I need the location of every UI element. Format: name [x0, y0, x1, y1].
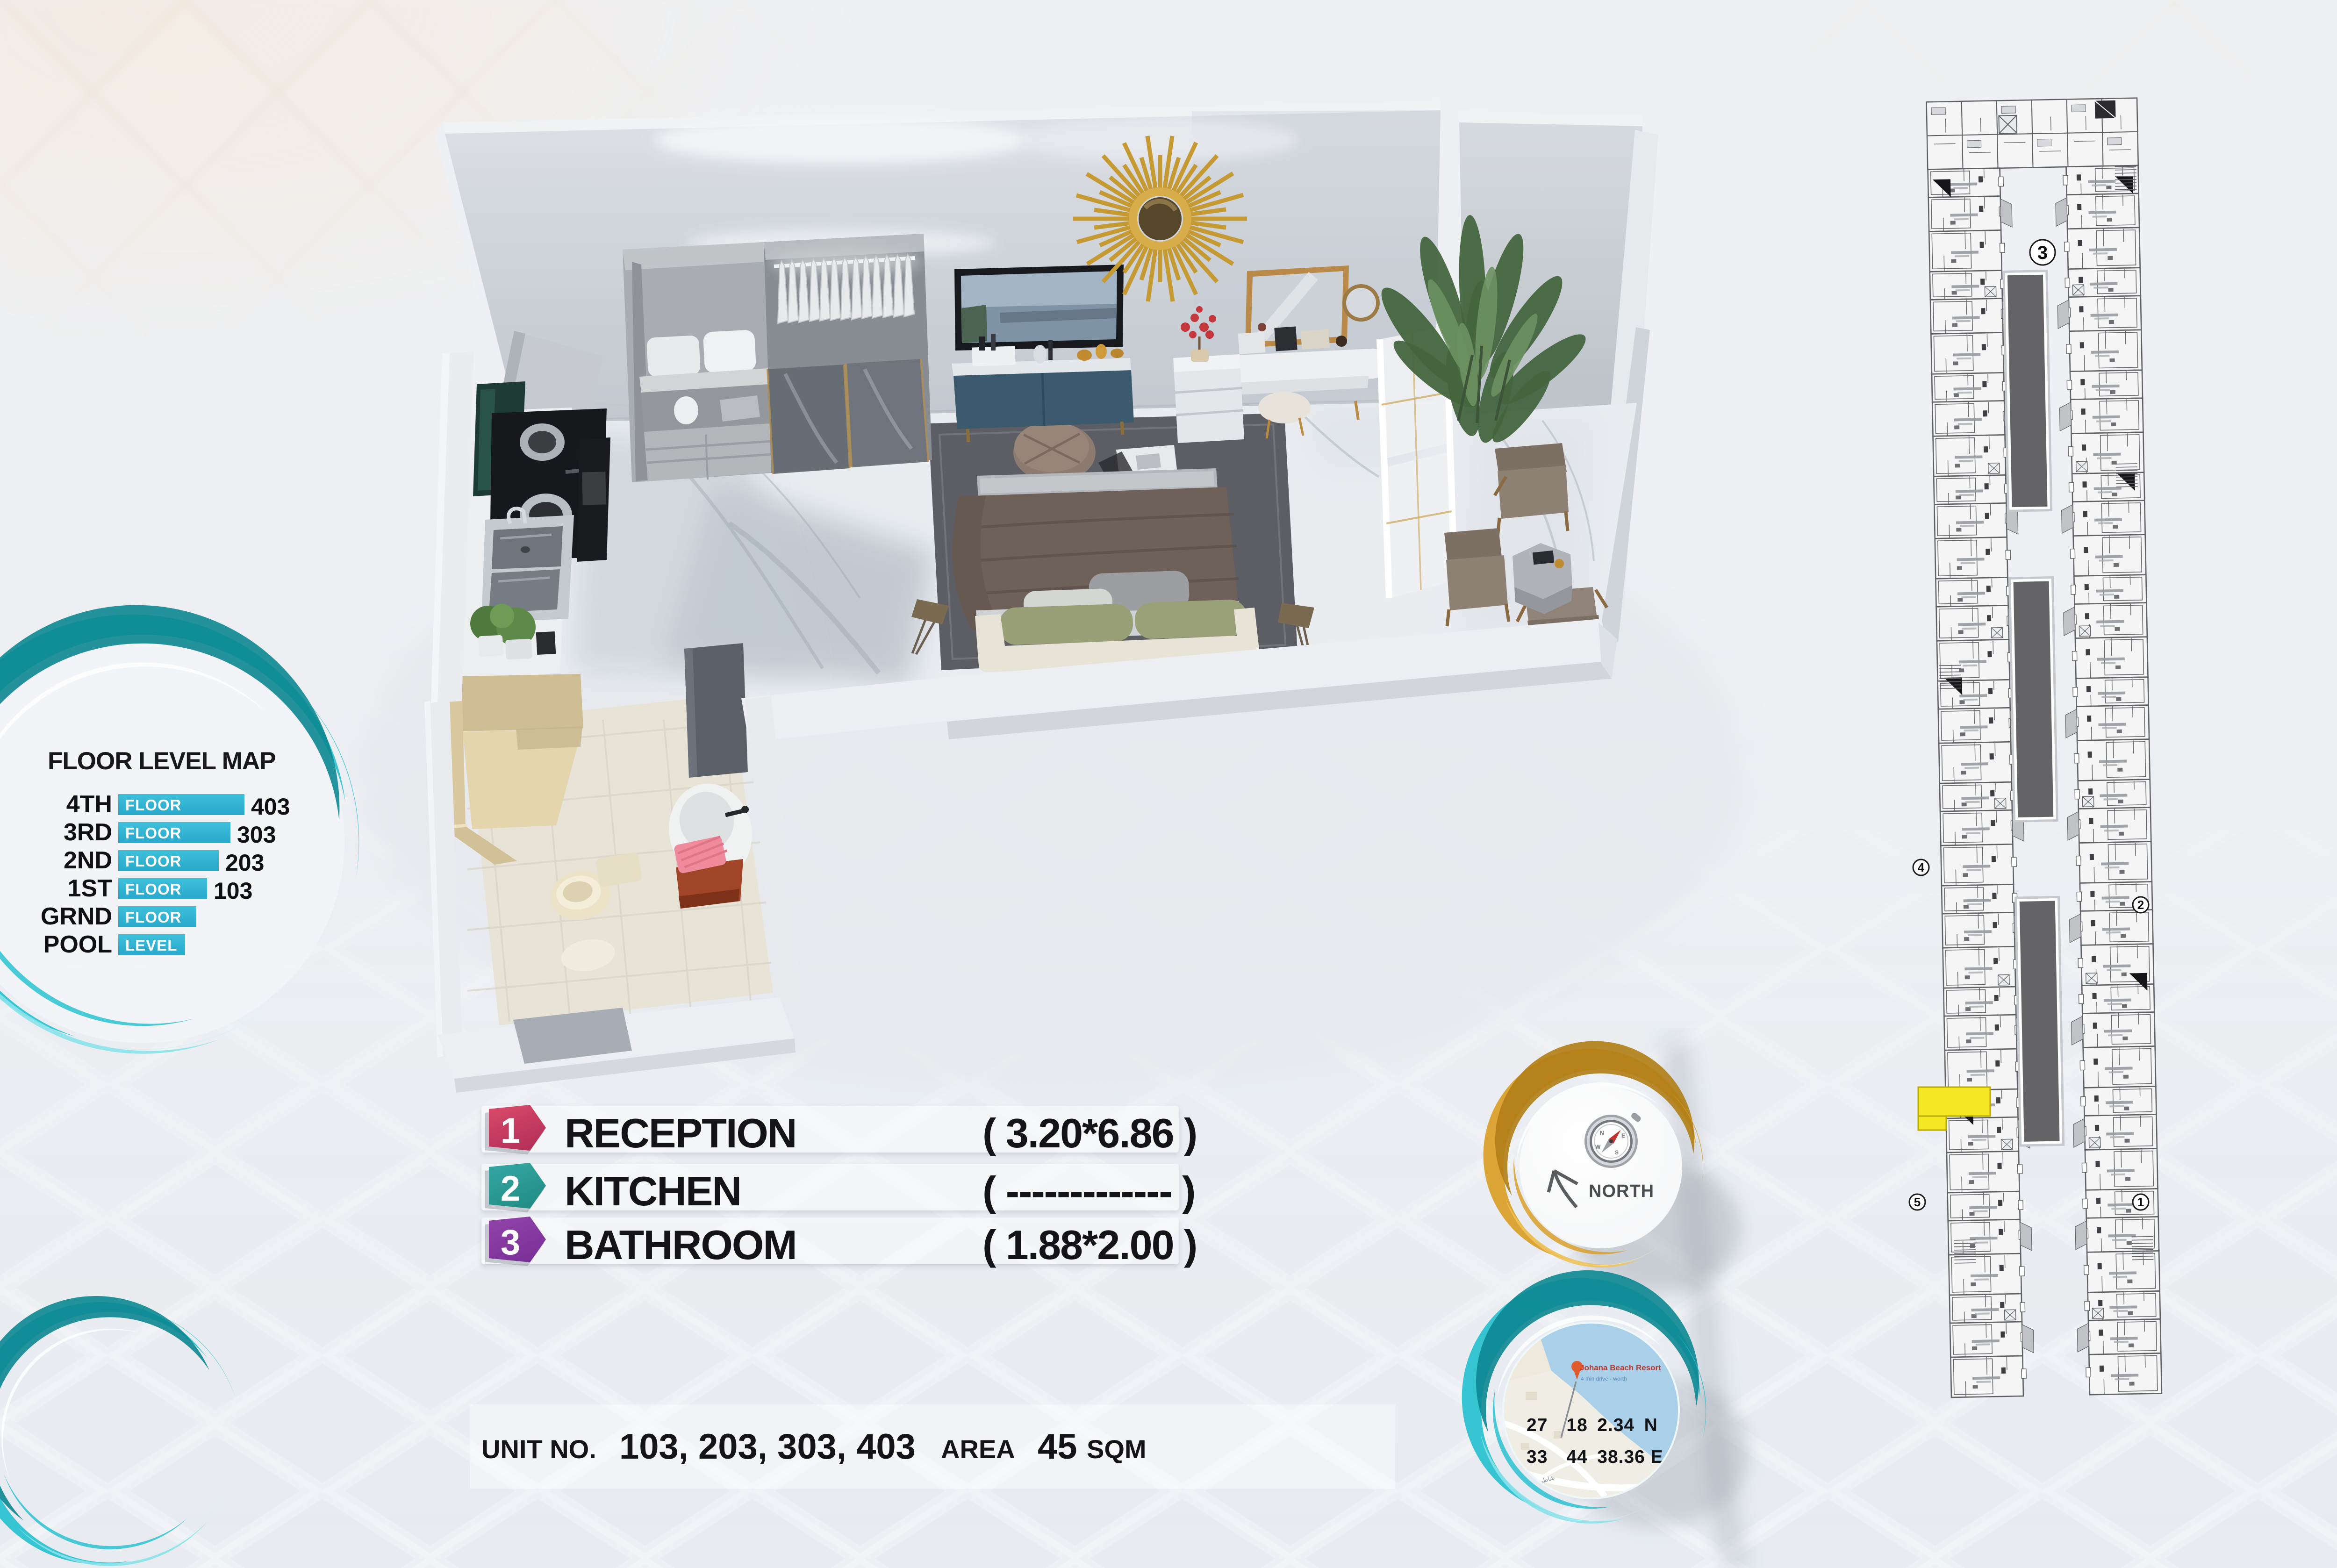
- svg-text:NORTH: NORTH: [1589, 1181, 1654, 1201]
- svg-text:1: 1: [2137, 1195, 2144, 1209]
- svg-text:2: 2: [2137, 898, 2144, 912]
- svg-text:27 18 2.34 N: 27 18 2.34 N: [1527, 1415, 1658, 1435]
- svg-text:E: E: [1621, 1132, 1625, 1139]
- svg-text:Johana Beach Resort: Johana Beach Resort: [1580, 1363, 1661, 1372]
- svg-text:W: W: [1595, 1144, 1601, 1150]
- svg-text:4: 4: [1918, 860, 1925, 874]
- svg-text:N: N: [1600, 1130, 1604, 1136]
- svg-text:S: S: [1615, 1149, 1619, 1156]
- svg-text:3: 3: [2037, 243, 2048, 263]
- svg-text:33 44 38.36 E: 33 44 38.36 E: [1527, 1447, 1663, 1467]
- svg-text:5: 5: [1914, 1195, 1921, 1209]
- svg-text:4 min drive - worth: 4 min drive - worth: [1581, 1375, 1627, 1382]
